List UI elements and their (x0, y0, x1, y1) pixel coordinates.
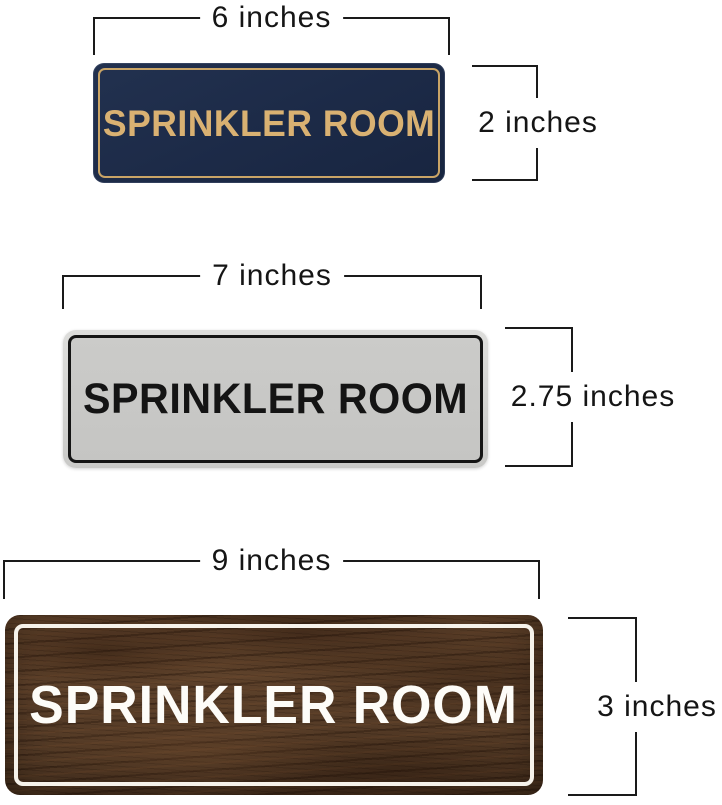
width-dimension-bracket: 6 inches (93, 17, 450, 55)
sign-text: SPRINKLER ROOM (30, 678, 519, 732)
width-dimension-bracket: 9 inches (3, 560, 540, 599)
sign-plate-silver: SPRINKLER ROOM (63, 330, 488, 468)
width-dimension-label: 7 inches (200, 257, 344, 295)
width-dimension-label: 9 inches (200, 542, 344, 580)
sign-text: SPRINKLER ROOM (83, 378, 468, 421)
sign-text: SPRINKLER ROOM (103, 105, 435, 142)
sign-plate-walnut: SPRINKLER ROOM (5, 615, 543, 795)
width-dimension-label: 6 inches (200, 0, 344, 37)
height-dimension-label: 2.75 inches (503, 372, 683, 422)
sign-size-diagram: 6 inches SPRINKLER ROOM 2 inches 7 inche… (0, 0, 722, 805)
height-dimension-label: 3 inches (589, 682, 722, 732)
height-dimension-bracket: 2 inches (472, 65, 538, 181)
height-dimension-bracket: 2.75 inches (505, 327, 573, 467)
width-dimension-bracket: 7 inches (62, 275, 482, 309)
sign-plate-navy: SPRINKLER ROOM (93, 63, 445, 183)
height-dimension-label: 2 inches (470, 98, 606, 148)
height-dimension-bracket: 3 inches (568, 617, 637, 796)
